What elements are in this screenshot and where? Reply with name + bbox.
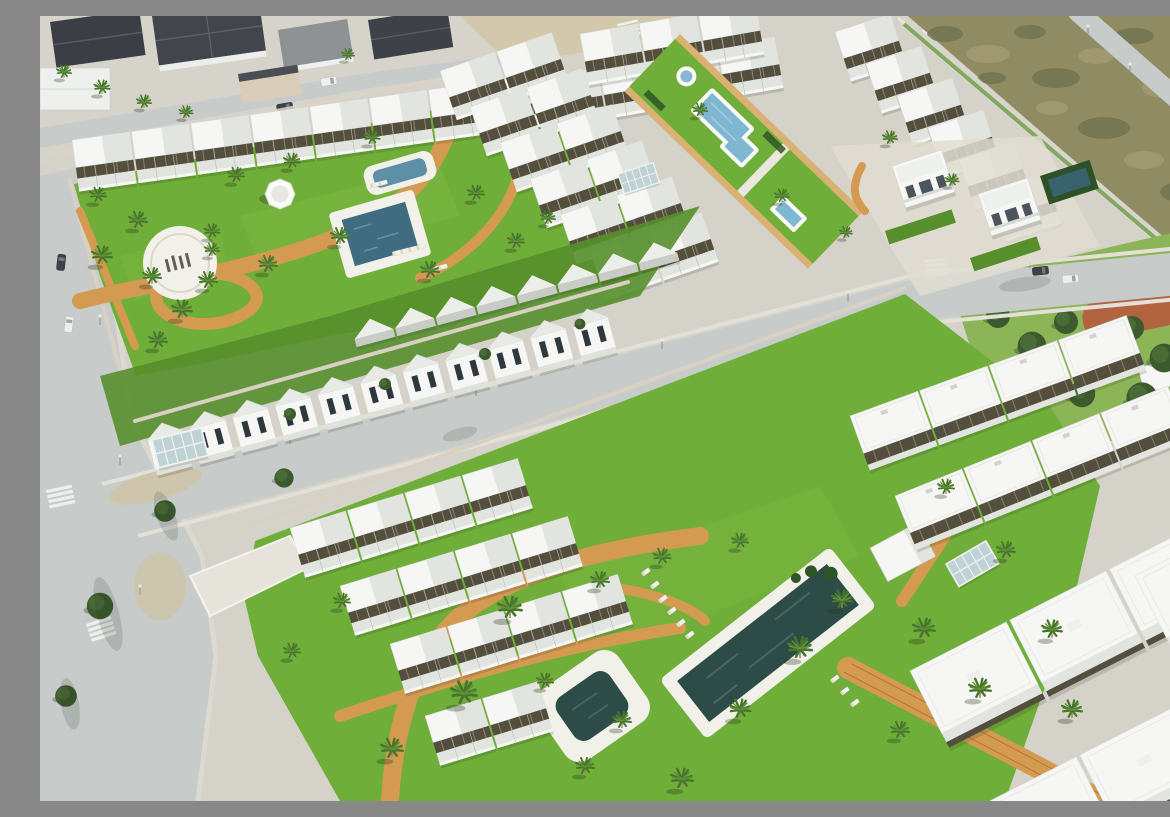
logo-plaza <box>143 226 217 300</box>
aerial-render-screenshot <box>40 16 1170 801</box>
